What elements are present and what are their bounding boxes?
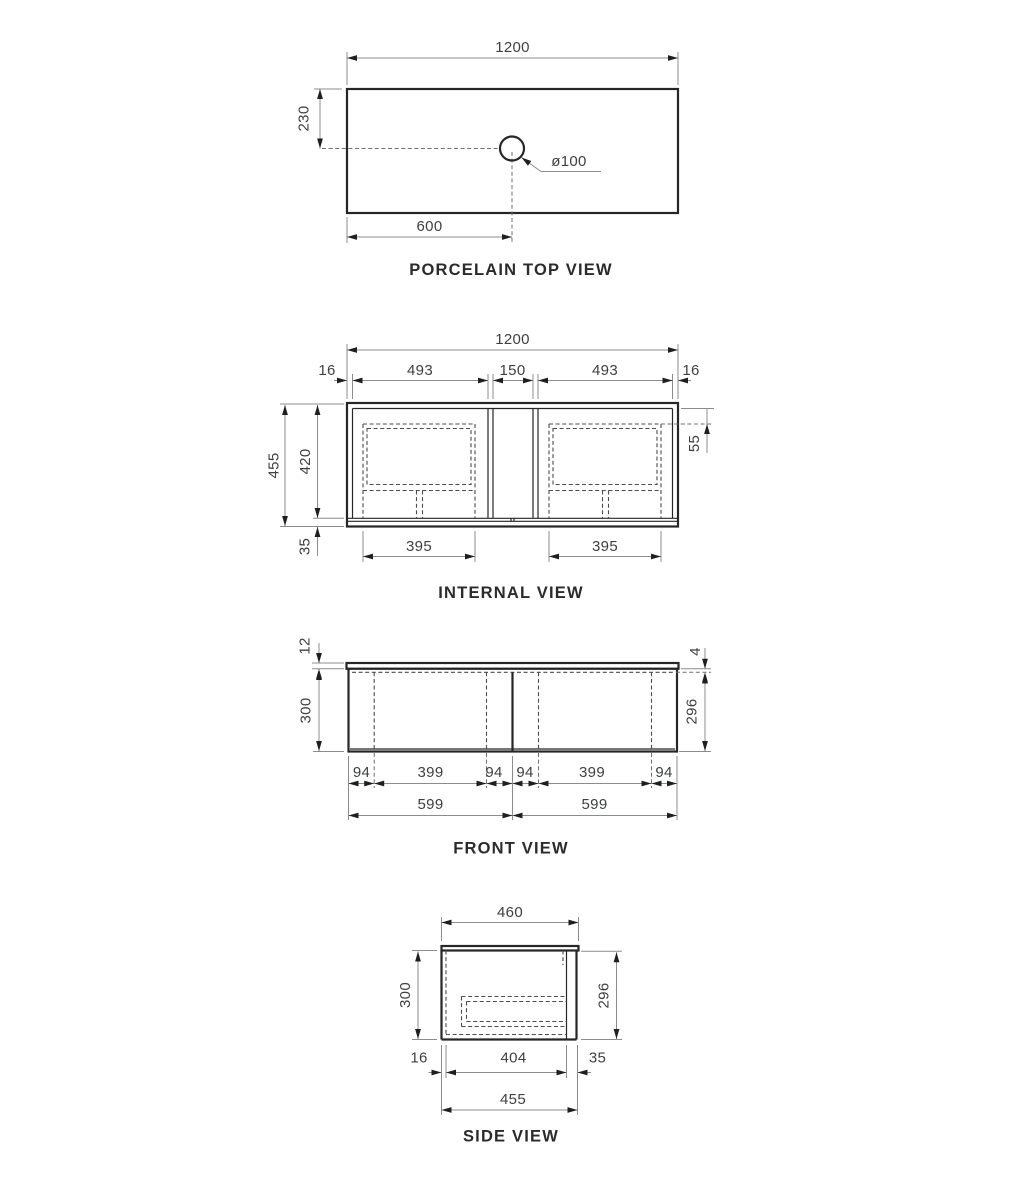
- dim-label-230: 230: [295, 106, 312, 132]
- dim-label-395-left: 395: [406, 538, 432, 555]
- dim-label-4: 4: [687, 647, 704, 656]
- dim-label-420: 420: [297, 449, 314, 475]
- dim-label-int-1200: 1200: [495, 331, 530, 348]
- dim-label-300-side: 300: [397, 982, 414, 1008]
- dim-hole-left-offset: 600: [347, 217, 512, 243]
- internal-view: 1200 16 493 150 493 16: [265, 331, 714, 602]
- dim-front-right-heights: 4 296: [676, 647, 711, 751]
- dim-label-94-4: 94: [655, 764, 672, 781]
- dim-label-150: 150: [500, 362, 526, 379]
- dim-label-404: 404: [501, 1050, 527, 1067]
- dim-hole-front-offset: 230: [295, 89, 342, 149]
- dim-label-hole-dia: ø100: [551, 153, 586, 170]
- technical-drawing-sheet: 1200 230 600 ø100 PORCELAIN TOP VIEW: [0, 0, 1024, 1177]
- cabinet-outline: [347, 403, 678, 527]
- dim-internal-heights: 455 420 35: [265, 404, 344, 556]
- dim-label-493-left: 493: [407, 362, 433, 379]
- dim-label-455-side: 455: [500, 1091, 526, 1108]
- dim-label-94-1: 94: [353, 764, 370, 781]
- dim-label-94-3: 94: [516, 764, 533, 781]
- dim-label-460: 460: [497, 904, 523, 921]
- dim-label-35-side: 35: [589, 1050, 606, 1067]
- side-top-slab: [442, 946, 579, 951]
- dim-label-455: 455: [265, 453, 282, 479]
- dim-label-16-right: 16: [682, 362, 699, 379]
- side-drawer-hidden: [462, 997, 567, 1027]
- dim-label-600: 600: [417, 218, 443, 235]
- front-view: 12 300 4 296 94: [296, 637, 711, 857]
- dim-label-599-left: 599: [418, 796, 444, 813]
- side-view: 460 300 296 16 404 35 455 SIDE VIE: [397, 904, 622, 1146]
- dim-front-bottom: 94 399 94 94 399 94 599 599: [349, 753, 678, 820]
- dim-label-599-right: 599: [582, 796, 608, 813]
- dim-label-35: 35: [296, 538, 313, 555]
- dim-side-top-depth: 460: [442, 904, 579, 941]
- front-view-title: FRONT VIEW: [453, 840, 569, 858]
- dim-label-296-side: 296: [595, 983, 612, 1009]
- dim-label-395-right: 395: [592, 538, 618, 555]
- dim-internal-segments: 16 493 150 493 16: [318, 362, 699, 399]
- dim-label-296-front: 296: [683, 699, 700, 725]
- internal-view-title: INTERNAL VIEW: [438, 584, 583, 602]
- dim-label-493-right: 493: [592, 362, 618, 379]
- dim-label-300-front: 300: [297, 698, 314, 724]
- dim-label-399-2: 399: [579, 764, 605, 781]
- top-view-title: PORCELAIN TOP VIEW: [409, 261, 612, 279]
- dim-top-width: 1200: [347, 39, 678, 85]
- dim-label-12: 12: [296, 637, 313, 654]
- dim-label-55: 55: [686, 435, 703, 452]
- dim-label-16-side: 16: [410, 1050, 427, 1067]
- side-view-title: SIDE VIEW: [463, 1128, 559, 1146]
- dim-front-left-heights: 12 300: [296, 637, 344, 751]
- dim-label-94-2: 94: [485, 764, 502, 781]
- dim-side-bottom: 16 404 35 455: [410, 1045, 606, 1115]
- vanity-dimension-drawing: 1200 230 600 ø100 PORCELAIN TOP VIEW: [0, 0, 1024, 1177]
- dim-label-16-left: 16: [318, 362, 335, 379]
- dim-label-399-1: 399: [418, 764, 444, 781]
- dim-label-1200: 1200: [495, 39, 530, 56]
- dim-drawer-widths: 395 395: [363, 531, 661, 562]
- porcelain-top-view: 1200 230 600 ø100 PORCELAIN TOP VIEW: [295, 39, 678, 279]
